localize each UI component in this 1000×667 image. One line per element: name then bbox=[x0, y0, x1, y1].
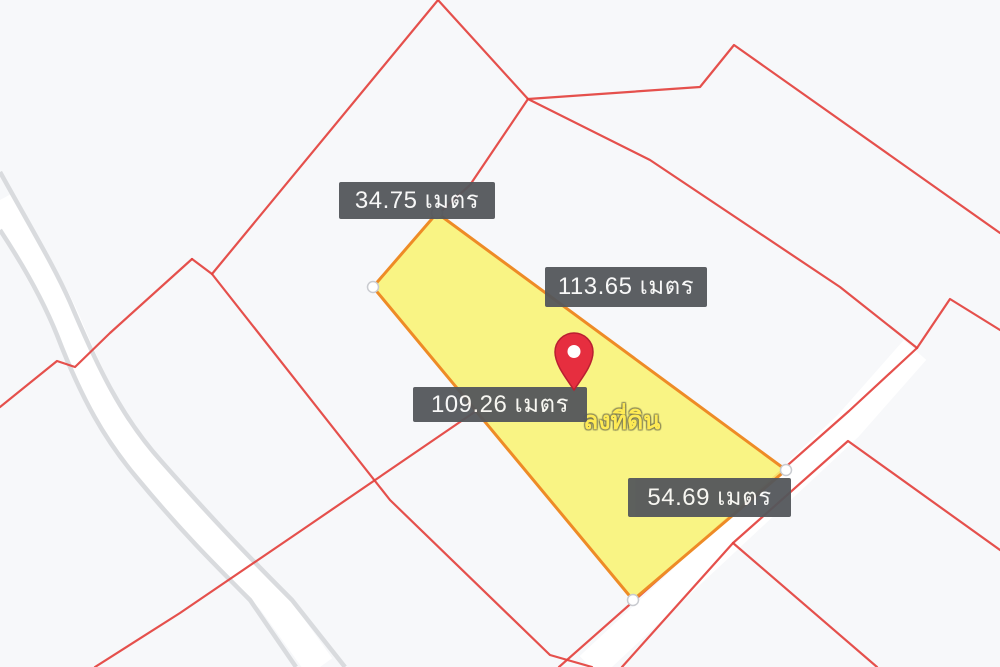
map-canvas[interactable]: ลงที่ดิน 34.75 เมตร 113.65 เมตร 109.26 เ… bbox=[0, 0, 1000, 667]
vertex-marker[interactable] bbox=[368, 282, 379, 293]
parcel-watermark-text: ลงที่ดิน bbox=[583, 401, 660, 441]
boundary-line bbox=[438, 0, 1000, 233]
map-pin-hole bbox=[568, 345, 581, 358]
vertex-marker[interactable] bbox=[628, 595, 639, 606]
measurement-label-bottom-right: 54.69 เมตร bbox=[628, 478, 791, 517]
measurement-label-top-right: 113.65 เมตร bbox=[545, 267, 707, 307]
map-pin-body bbox=[555, 333, 593, 390]
boundary-line bbox=[917, 299, 1000, 348]
gray-road-edge-right bbox=[0, 172, 345, 667]
boundary-line bbox=[212, 0, 438, 274]
map-pin-icon[interactable] bbox=[545, 323, 605, 393]
boundary-line bbox=[528, 99, 917, 348]
vertex-marker[interactable] bbox=[781, 465, 792, 476]
parcel-map-svg[interactable] bbox=[0, 0, 1000, 667]
boundary-line bbox=[733, 543, 877, 667]
measurement-label-top-left: 34.75 เมตร bbox=[339, 182, 495, 219]
gray-road-surface bbox=[0, 200, 320, 667]
